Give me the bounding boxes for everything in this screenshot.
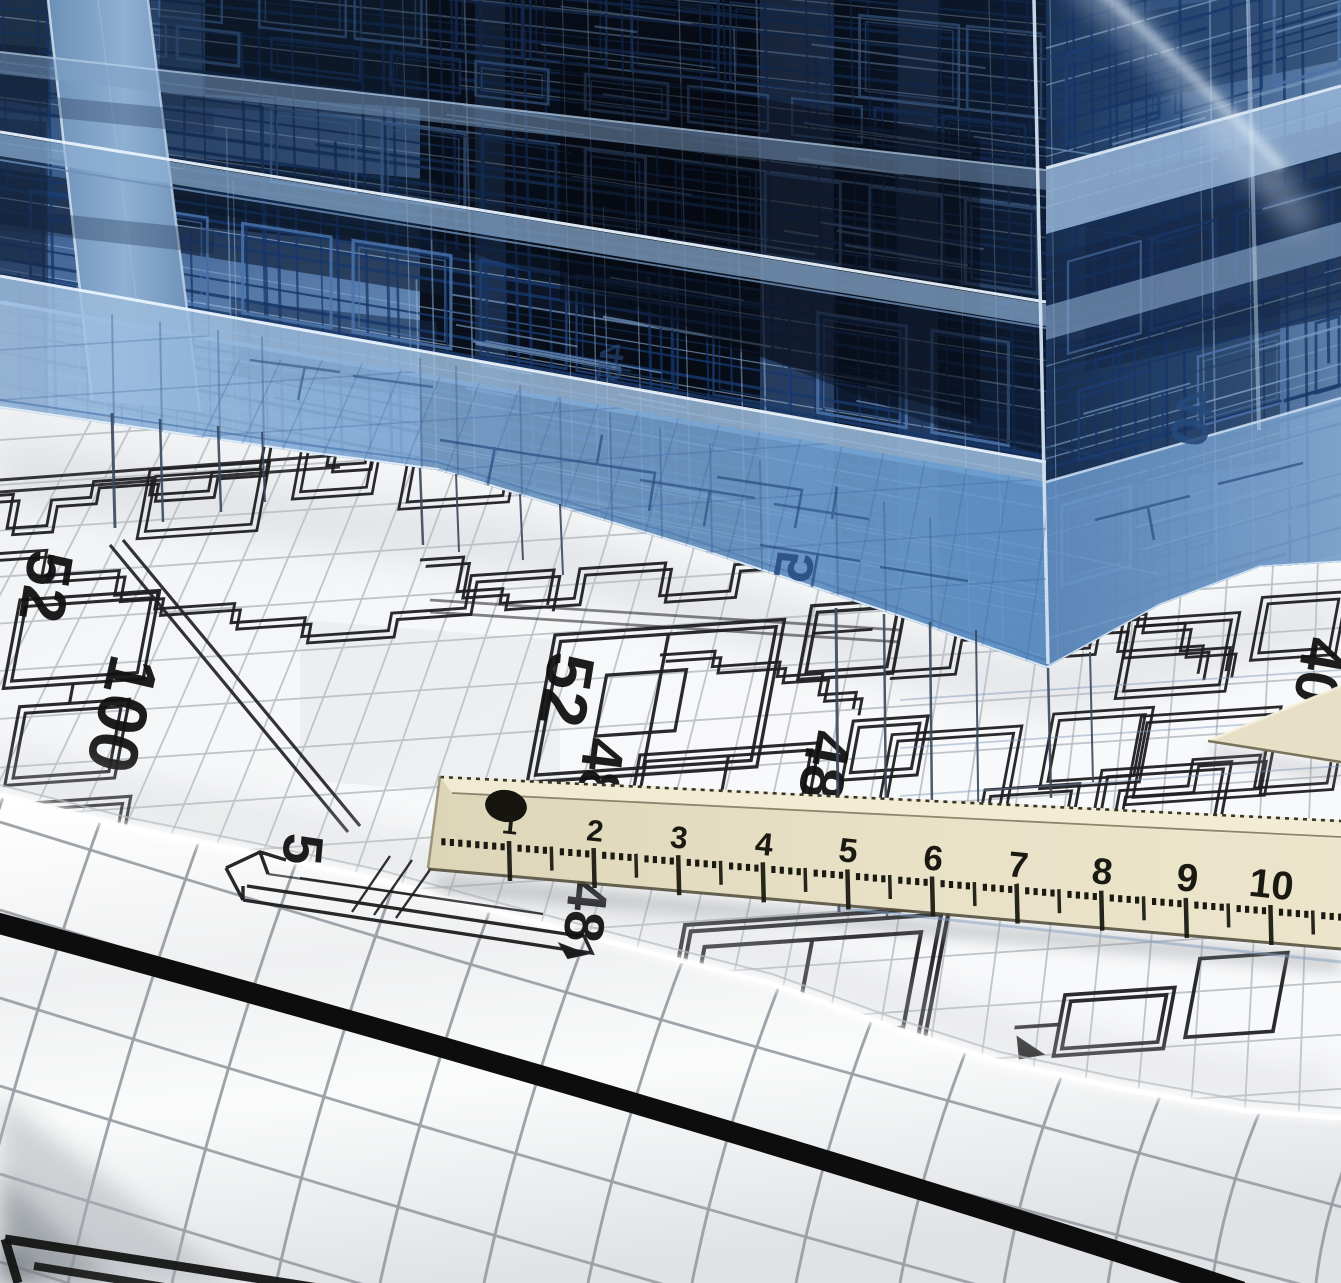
svg-text:40: 40: [1160, 384, 1227, 451]
svg-text:10: 10: [1247, 861, 1296, 909]
svg-text:7: 7: [1006, 843, 1030, 886]
svg-text:2: 2: [585, 814, 605, 849]
svg-text:1: 1: [501, 808, 520, 840]
svg-text:9: 9: [1174, 856, 1200, 901]
svg-text:3: 3: [669, 819, 690, 856]
svg-text:5: 5: [270, 831, 335, 868]
svg-text:6: 6: [921, 838, 944, 879]
svg-text:52: 52: [525, 648, 610, 732]
svg-text:45: 45: [590, 341, 633, 384]
svg-text:8: 8: [1090, 850, 1115, 893]
svg-text:5: 5: [837, 831, 860, 871]
svg-text:48: 48: [552, 877, 621, 946]
svg-text:52: 52: [5, 546, 87, 628]
